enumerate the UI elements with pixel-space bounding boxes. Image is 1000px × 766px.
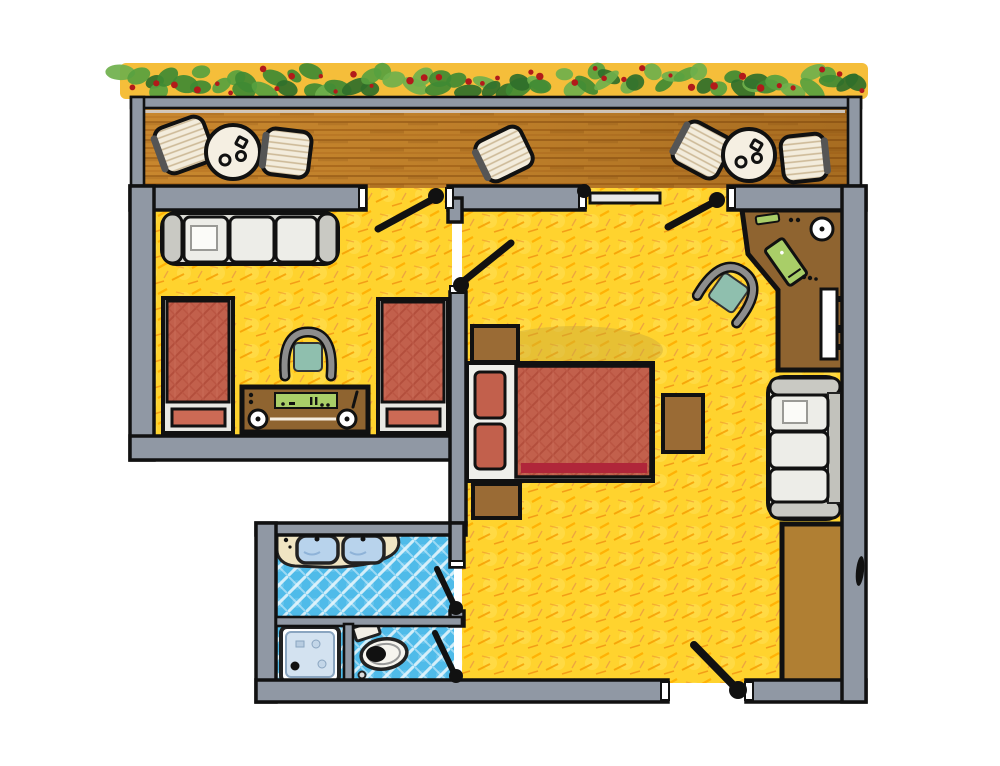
hedge-berry xyxy=(260,66,267,73)
bed-pillow xyxy=(387,409,440,426)
wardrobe xyxy=(782,524,846,682)
single-bed xyxy=(378,299,448,433)
wall-left xyxy=(130,186,154,460)
pillow xyxy=(783,401,807,423)
seat-cushion xyxy=(276,217,317,262)
shower-tray xyxy=(281,627,339,682)
seat-cushion xyxy=(230,217,274,262)
table-item xyxy=(236,137,248,148)
hedge-berry xyxy=(688,84,695,91)
hedge-berry xyxy=(739,73,746,80)
floor-plan-canvas xyxy=(0,0,1000,766)
hedge-berry xyxy=(130,85,136,91)
wall-bathroom-left xyxy=(256,523,276,702)
balcony-wall-top xyxy=(131,97,861,108)
hedge-berry xyxy=(274,86,279,91)
wall-bottom-left xyxy=(256,680,668,702)
balcony-table xyxy=(723,129,775,181)
door-leaf-open xyxy=(590,193,660,203)
hedge-berry xyxy=(194,86,201,93)
wall-bathroom-partition xyxy=(276,617,462,626)
door-jamb xyxy=(446,188,453,208)
bed-blanket xyxy=(382,302,444,402)
hedge-berry xyxy=(819,67,825,73)
bed-blanket xyxy=(167,301,229,402)
deck-inner-line xyxy=(145,110,845,113)
hedge-berry xyxy=(668,73,672,77)
hedge-berry xyxy=(288,73,295,80)
hedge-berry xyxy=(228,91,233,96)
faucet xyxy=(315,537,320,542)
wall-bathroom-top xyxy=(256,523,466,535)
double-bed xyxy=(467,363,653,481)
media-console xyxy=(242,387,368,432)
cup xyxy=(220,155,230,165)
hedge-berry xyxy=(465,78,472,85)
hedge-berry xyxy=(370,84,374,88)
wall-wc-divider xyxy=(344,624,353,682)
hedge-berry xyxy=(171,82,178,89)
sofa-two-seat xyxy=(768,377,842,519)
desk-panel xyxy=(821,289,837,359)
hedge-berry xyxy=(495,76,500,81)
hedge-berry xyxy=(333,89,337,93)
hedge-berry xyxy=(593,66,598,71)
wall-top-left xyxy=(130,186,366,210)
hedge-berry xyxy=(777,83,782,88)
nightstand xyxy=(473,484,520,518)
balcony-wall-left xyxy=(131,97,144,189)
hedge-berry xyxy=(572,79,579,86)
faucet xyxy=(361,537,366,542)
single-bed xyxy=(163,298,233,433)
hedge-berry xyxy=(153,80,159,86)
pillow xyxy=(191,226,217,250)
bed-pillow xyxy=(172,409,225,426)
wall-bedroom-divider xyxy=(450,292,466,524)
wall-second-bedroom-bottom xyxy=(130,436,466,460)
bed-pillow xyxy=(475,372,505,418)
armrest xyxy=(318,214,337,263)
hedge-berry xyxy=(421,74,428,81)
hedge-berry xyxy=(480,81,485,86)
cup xyxy=(753,154,762,163)
hedge-berry xyxy=(601,76,607,82)
seat-cushion xyxy=(770,469,828,502)
drain xyxy=(291,662,300,671)
hedge-berry xyxy=(710,82,718,90)
hedge-berry xyxy=(859,88,864,93)
hedge-berry xyxy=(319,74,323,78)
nightstand xyxy=(472,326,518,362)
bed-duvet xyxy=(516,366,651,477)
hedge-berry xyxy=(436,74,442,80)
floor-plan-drawing xyxy=(0,0,1000,766)
sofa-back xyxy=(828,393,841,503)
hedge-berry xyxy=(757,84,764,91)
balcony-chair xyxy=(261,127,312,178)
cup xyxy=(736,157,746,167)
wall-right xyxy=(842,186,866,702)
hedge-berry xyxy=(837,71,843,77)
hedge-berry xyxy=(791,85,796,90)
side-table xyxy=(663,395,703,452)
wall-top-middle xyxy=(448,186,585,210)
hedge-berry xyxy=(536,73,543,80)
sofa-three-seat xyxy=(162,213,338,264)
door-jamb xyxy=(728,188,735,208)
balcony-chair xyxy=(780,133,829,183)
chair-seat xyxy=(294,343,322,371)
door-jamb xyxy=(359,188,366,208)
hedge-berry xyxy=(215,81,220,86)
hedge-berry xyxy=(528,70,533,75)
balcony-table xyxy=(206,125,260,179)
hedge-berry xyxy=(639,65,645,71)
seat-cushion xyxy=(770,432,828,468)
door-jamb xyxy=(661,682,669,700)
hedge-berry xyxy=(621,77,626,82)
balcony-terrace xyxy=(131,97,861,189)
cup xyxy=(237,152,246,161)
hedge-berry xyxy=(406,77,413,84)
armrest xyxy=(163,214,182,263)
door-jamb xyxy=(450,561,464,567)
bed-pillow xyxy=(475,424,505,469)
balcony-wall-right xyxy=(848,97,861,189)
hedge-berry xyxy=(350,71,357,78)
duvet-stripe xyxy=(521,463,647,473)
